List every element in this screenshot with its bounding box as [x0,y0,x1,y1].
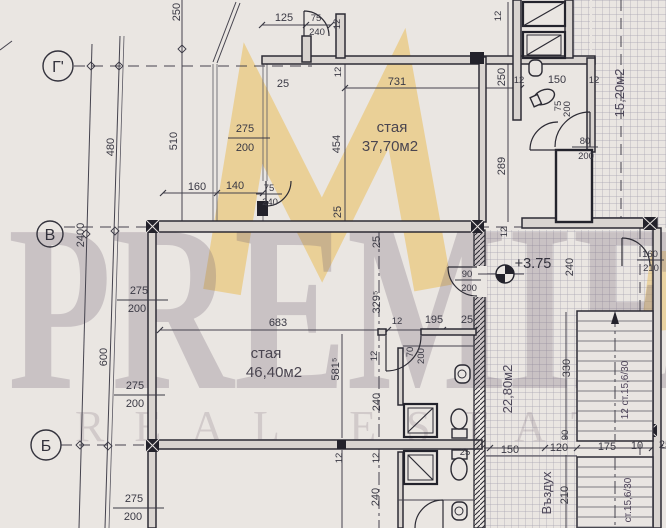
wall-room1-right [479,57,486,222]
dim-label: 240 [309,27,325,38]
room-area-2: 46,40м2 [246,364,302,381]
dim-label: 80 [580,136,591,147]
dim-label: 12 [392,316,403,327]
dim-label: 12 [332,19,343,30]
room-name-1: стая [377,119,408,136]
dim-label: 12 [333,67,344,78]
sink-3 [529,60,542,76]
axis-label-g: Г' [52,59,64,76]
dim-label: 200 [578,151,594,162]
axis-label-v: В [45,227,56,244]
dim-label: 12 [334,453,345,464]
dim-label: 210 [559,486,571,504]
dim-label: 2400 [75,223,87,247]
dim-label: 25 [659,439,666,451]
dim-label: 240 [370,488,382,506]
dim-label: 200 [236,142,254,154]
dim-label: 120 [550,442,568,454]
stair-label-upper: 12 ст.15,6/30 [620,360,631,419]
dim-label: 25 [460,447,471,458]
room-label-airshaft: Въздух [539,471,554,515]
dim-label: 25 [332,206,344,218]
dim-label: 581⁵ [330,358,342,381]
dim-label: 150 [548,74,566,86]
staircase [577,311,653,528]
dim-label: 175 [598,441,616,453]
dim-label: 25 [371,236,383,248]
dim-label: 75 [311,13,322,24]
dim-label: 12 [589,75,600,86]
dim-label: 10 [631,440,643,452]
dim-label: 454 [331,135,343,153]
dim-label: 150 [501,444,519,456]
dim-label: 75 [264,183,275,194]
room-area-corridor: 22,80м2 [500,365,515,414]
dim-label: 12 [493,11,504,22]
dim-label: 12 [369,351,380,362]
dim-label: 250 [496,68,508,86]
dim-label: 160 [642,249,658,260]
floor-plan-svg: PREMIER REAL ESTATE Г' В Б [0,0,666,528]
dim-label: 275 [236,123,254,135]
dim-label: 200 [128,303,146,315]
dim-label: 12 [514,75,525,86]
sink-2 [452,502,467,520]
wall-axis-b [152,440,482,449]
sink-1 [455,365,470,383]
dim-label: 250 [171,3,183,21]
toilet-1 [451,409,467,438]
room-area-hall: 15,20м2 [612,69,627,118]
dim-label: 240 [564,258,576,276]
dim-label: 90 [462,269,473,280]
dim-label: 275 [130,285,148,297]
dim-label: 12 [371,453,382,464]
dim-label: 160 [188,181,206,193]
level-mark-label: +3.75 [515,256,552,272]
wall-axis-v [152,221,482,232]
dim-label: 240 [262,197,278,208]
dim-label: 731 [388,76,406,88]
dim-label: 200 [124,511,142,523]
room-name-2: стая [251,345,282,362]
dim-label: 12 [499,227,510,238]
dim-label: 70 [405,347,416,358]
dim-label: 210 [643,263,659,274]
dim-label: 275 [126,380,144,392]
dim-label: 330 [561,359,573,377]
dim-label: 25 [461,314,473,326]
axis-label-b: Б [41,438,52,455]
dim-label: 200 [461,283,477,294]
dim-label: 200 [562,101,573,117]
dim-label: 200 [126,398,144,410]
dim-label: 25 [277,78,289,90]
dim-label: 275 [125,493,143,505]
dim-label: 510 [168,132,180,150]
dim-label: 480 [105,138,117,156]
dim-label: 125 [275,12,293,24]
dim-label: 240 [371,393,383,411]
dim-label: 195 [425,314,443,326]
dim-label: 600 [98,348,110,366]
wall-room2-left [148,232,156,528]
dim-label: 329⁵ [371,291,383,314]
dim-label: 289 [496,157,508,175]
dim-label: 683 [269,317,287,329]
room-area-1: 37,70м2 [362,138,418,155]
floor-plan-scan: PREMIER REAL ESTATE Г' В Б [0,0,666,528]
dim-label: 140 [226,180,244,192]
stair-label-lower: ст.15,6/30 [623,477,634,522]
dim-label: 200 [416,348,427,364]
dim-label: 90 [560,430,571,441]
